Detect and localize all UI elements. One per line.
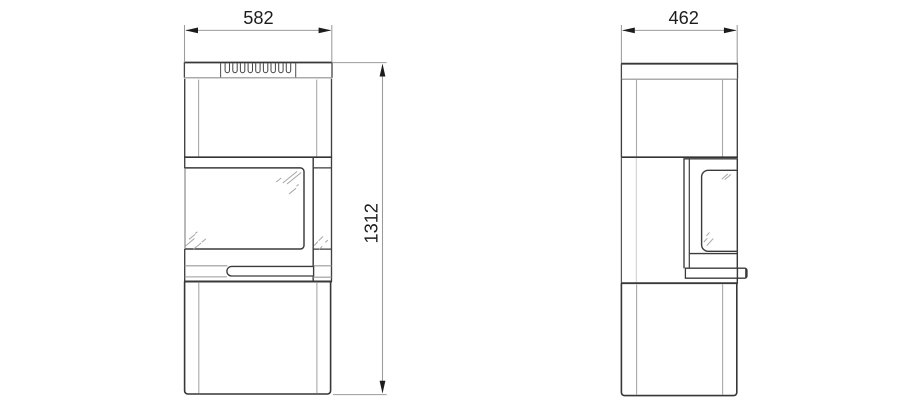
svg-text:462: 462 bbox=[669, 8, 699, 28]
svg-text:582: 582 bbox=[243, 8, 273, 28]
svg-text:1312: 1312 bbox=[361, 203, 381, 243]
